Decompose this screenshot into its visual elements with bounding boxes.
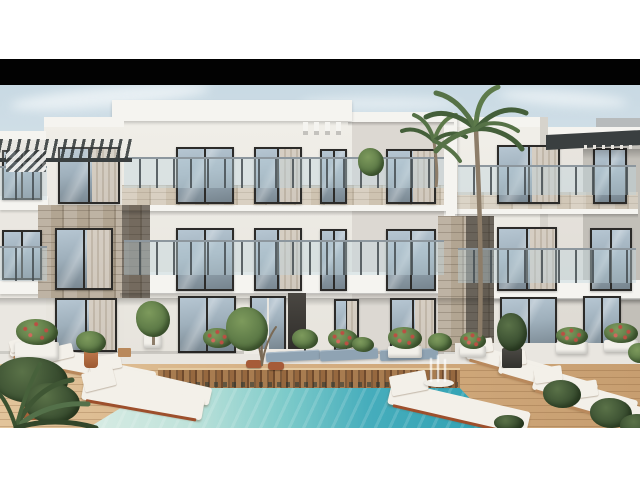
balcony-rail-2f-left-wing (0, 246, 47, 281)
palm-tree-icon (420, 85, 530, 345)
fountain-jet (437, 355, 439, 382)
beam-shadow (303, 131, 347, 135)
green-plant (604, 323, 638, 343)
red-flowers (604, 323, 638, 343)
balcony-rail-2f-center (124, 240, 444, 275)
green-plant (136, 301, 170, 337)
window-curtain (87, 230, 111, 288)
red-flowers (556, 327, 588, 345)
letterbox-bar (0, 59, 640, 85)
balcony-rail-3f-center (124, 157, 444, 188)
green-plant (556, 327, 588, 345)
red-flowers (388, 327, 422, 349)
dark-shrub (494, 415, 524, 428)
green-plant (292, 329, 318, 349)
window (55, 228, 113, 290)
left-block-fascia (44, 117, 124, 127)
side-table (118, 348, 131, 357)
green-plant (388, 327, 422, 349)
render-scene (0, 85, 640, 428)
central-parapet (112, 100, 352, 121)
green-plant (358, 148, 384, 176)
window-mullion (83, 230, 85, 288)
green-plant (352, 337, 374, 352)
planter-pot (502, 348, 522, 368)
fountain-jet (444, 359, 446, 382)
right-pergola-shadow (583, 149, 640, 159)
foreground-palm-bush-icon (0, 340, 118, 428)
stone-band-shadow (122, 211, 446, 216)
green-plant (226, 307, 268, 351)
dark-shrub (543, 380, 581, 408)
image-frame (0, 0, 640, 480)
left-awning (6, 150, 46, 172)
right-pergola-beam-ends (584, 145, 634, 149)
fountain-jet (430, 358, 432, 382)
parapet-beam-ends (303, 122, 347, 131)
fountain-basin (424, 379, 454, 387)
